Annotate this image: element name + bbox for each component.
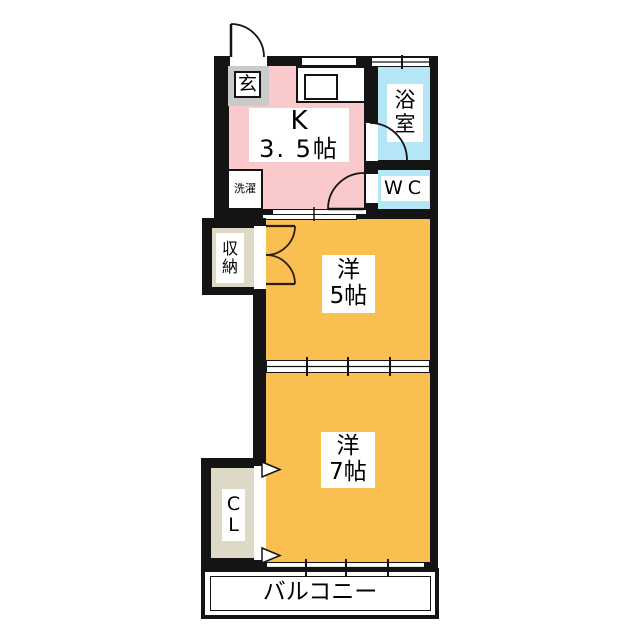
room-divider-sliding-door	[266, 360, 430, 373]
floorplan: バルコニー 収納 C L 玄 洗濯 K 3. 5帖 浴室 WC 洋 5帖 洋 7…	[0, 0, 640, 640]
entrance-door-swing	[231, 24, 264, 57]
closet-door-track	[254, 466, 266, 560]
genkan-label: 玄	[234, 71, 261, 98]
wall-right	[430, 56, 438, 573]
laundry-box: 洗濯	[227, 169, 263, 210]
storage-label: 収納	[216, 233, 244, 283]
room7-label: 洋 7帖	[321, 432, 375, 488]
bath-window	[371, 57, 430, 67]
kitchen-window	[301, 57, 357, 66]
entrance-doorway	[230, 56, 267, 66]
wc-doorway	[366, 174, 378, 203]
kitchen-sink	[304, 74, 338, 100]
sliding-door-lower-leaf	[262, 214, 357, 220]
bath-doorway	[366, 123, 378, 161]
balcony-label: バルコニー	[240, 576, 400, 610]
room5-label: 洋 5帖	[322, 255, 375, 313]
closet-label: C L	[222, 489, 245, 541]
kitchen-label: K 3. 5帖	[249, 108, 349, 162]
bath-label: 浴室	[387, 84, 423, 142]
wall-bath-wc	[378, 160, 430, 170]
storage-door-track	[254, 226, 266, 289]
wc-label: WC	[381, 176, 429, 201]
